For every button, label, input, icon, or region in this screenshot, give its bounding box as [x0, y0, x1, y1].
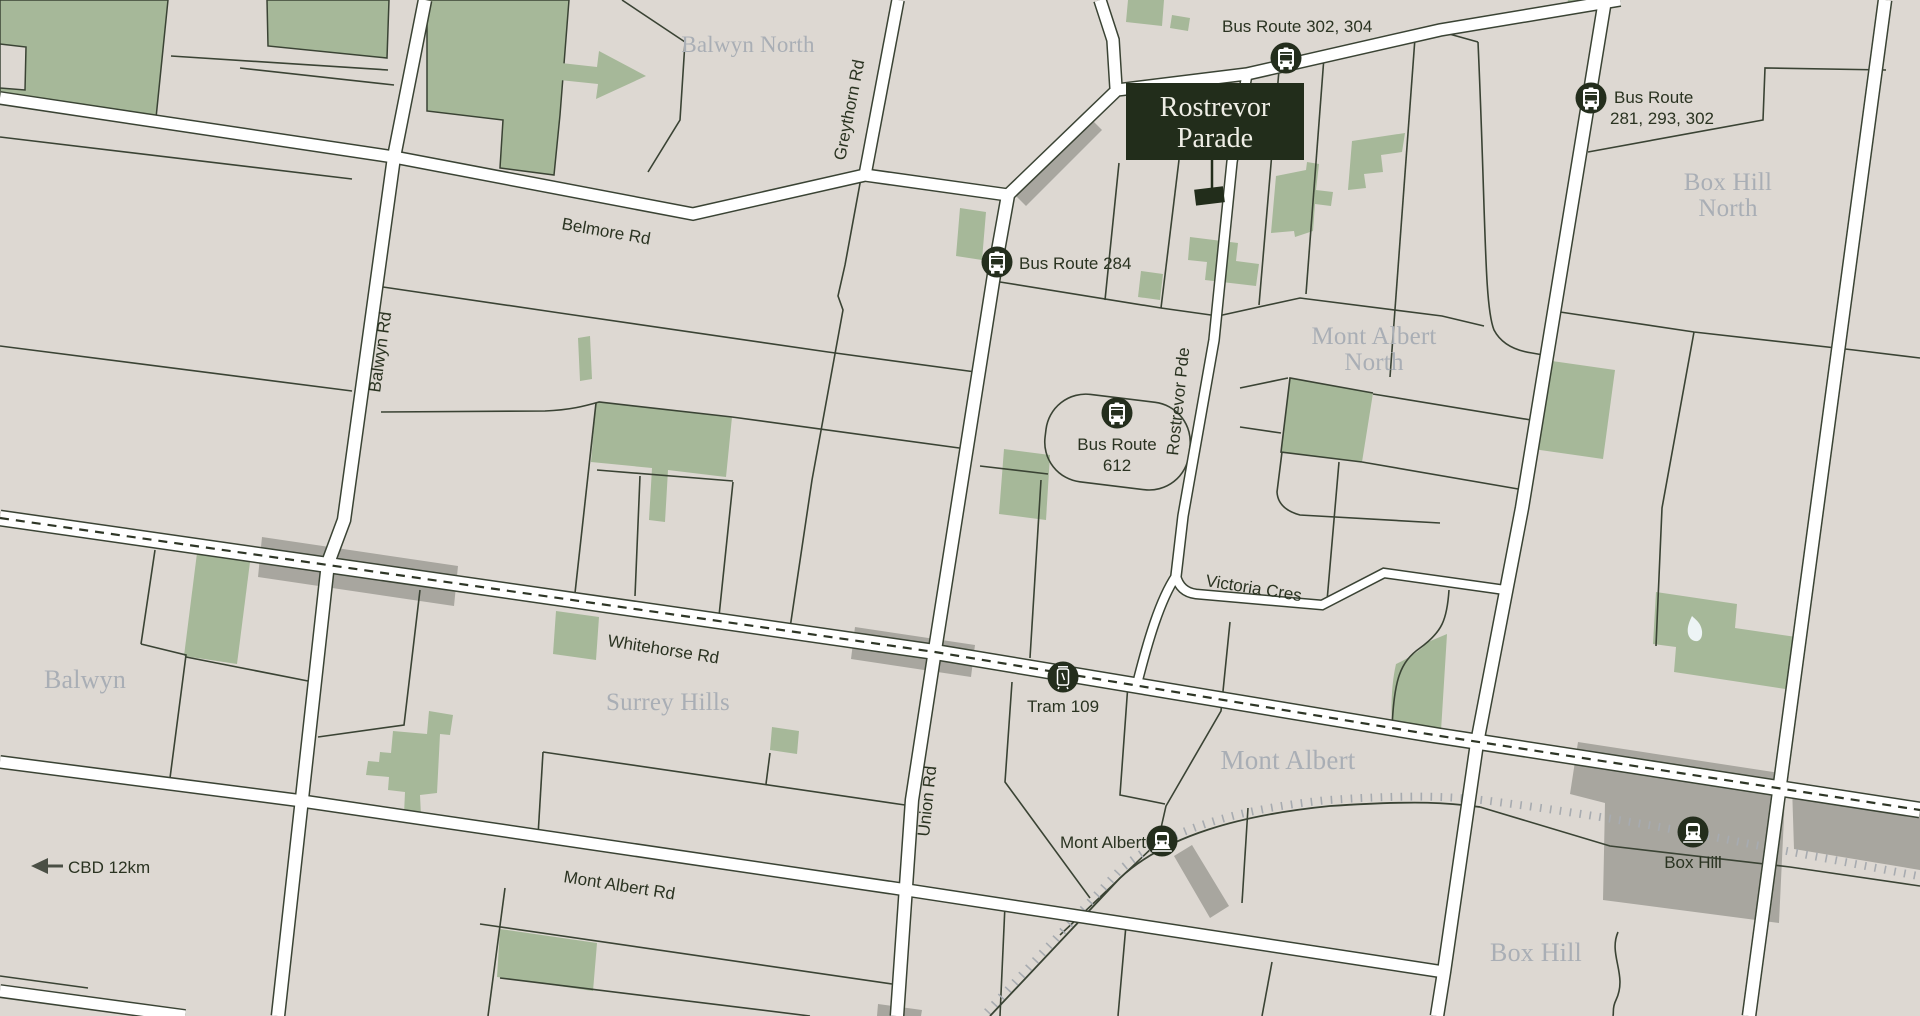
svg-text:Mont Albert: Mont Albert — [1221, 745, 1356, 775]
svg-text:Box Hill: Box Hill — [1664, 853, 1722, 872]
svg-text:Bus Route 284: Bus Route 284 — [1019, 254, 1131, 273]
svg-text:Mont Albert: Mont Albert — [1060, 833, 1146, 852]
svg-text:Tram 109: Tram 109 — [1027, 697, 1099, 716]
svg-text:Balwyn North: Balwyn North — [681, 32, 815, 57]
svg-text:Box Hill: Box Hill — [1490, 938, 1582, 967]
svg-text:Parade: Parade — [1177, 123, 1253, 154]
svg-text:612: 612 — [1103, 456, 1131, 475]
svg-text:281, 293, 302: 281, 293, 302 — [1610, 109, 1714, 128]
svg-text:Balwyn: Balwyn — [44, 665, 126, 694]
svg-text:Box Hill: Box Hill — [1684, 169, 1772, 196]
svg-text:Rostrevor: Rostrevor — [1160, 92, 1271, 123]
svg-text:Bus Route: Bus Route — [1614, 88, 1693, 107]
svg-text:Bus Route 302, 304: Bus Route 302, 304 — [1222, 17, 1372, 36]
svg-text:Surrey Hills: Surrey Hills — [606, 689, 730, 716]
svg-text:Mont Albert: Mont Albert — [1311, 323, 1436, 350]
svg-text:North: North — [1698, 195, 1758, 222]
svg-text:North: North — [1344, 349, 1404, 376]
svg-text:Bus Route: Bus Route — [1077, 435, 1156, 454]
svg-text:CBD 12km: CBD 12km — [68, 858, 150, 877]
